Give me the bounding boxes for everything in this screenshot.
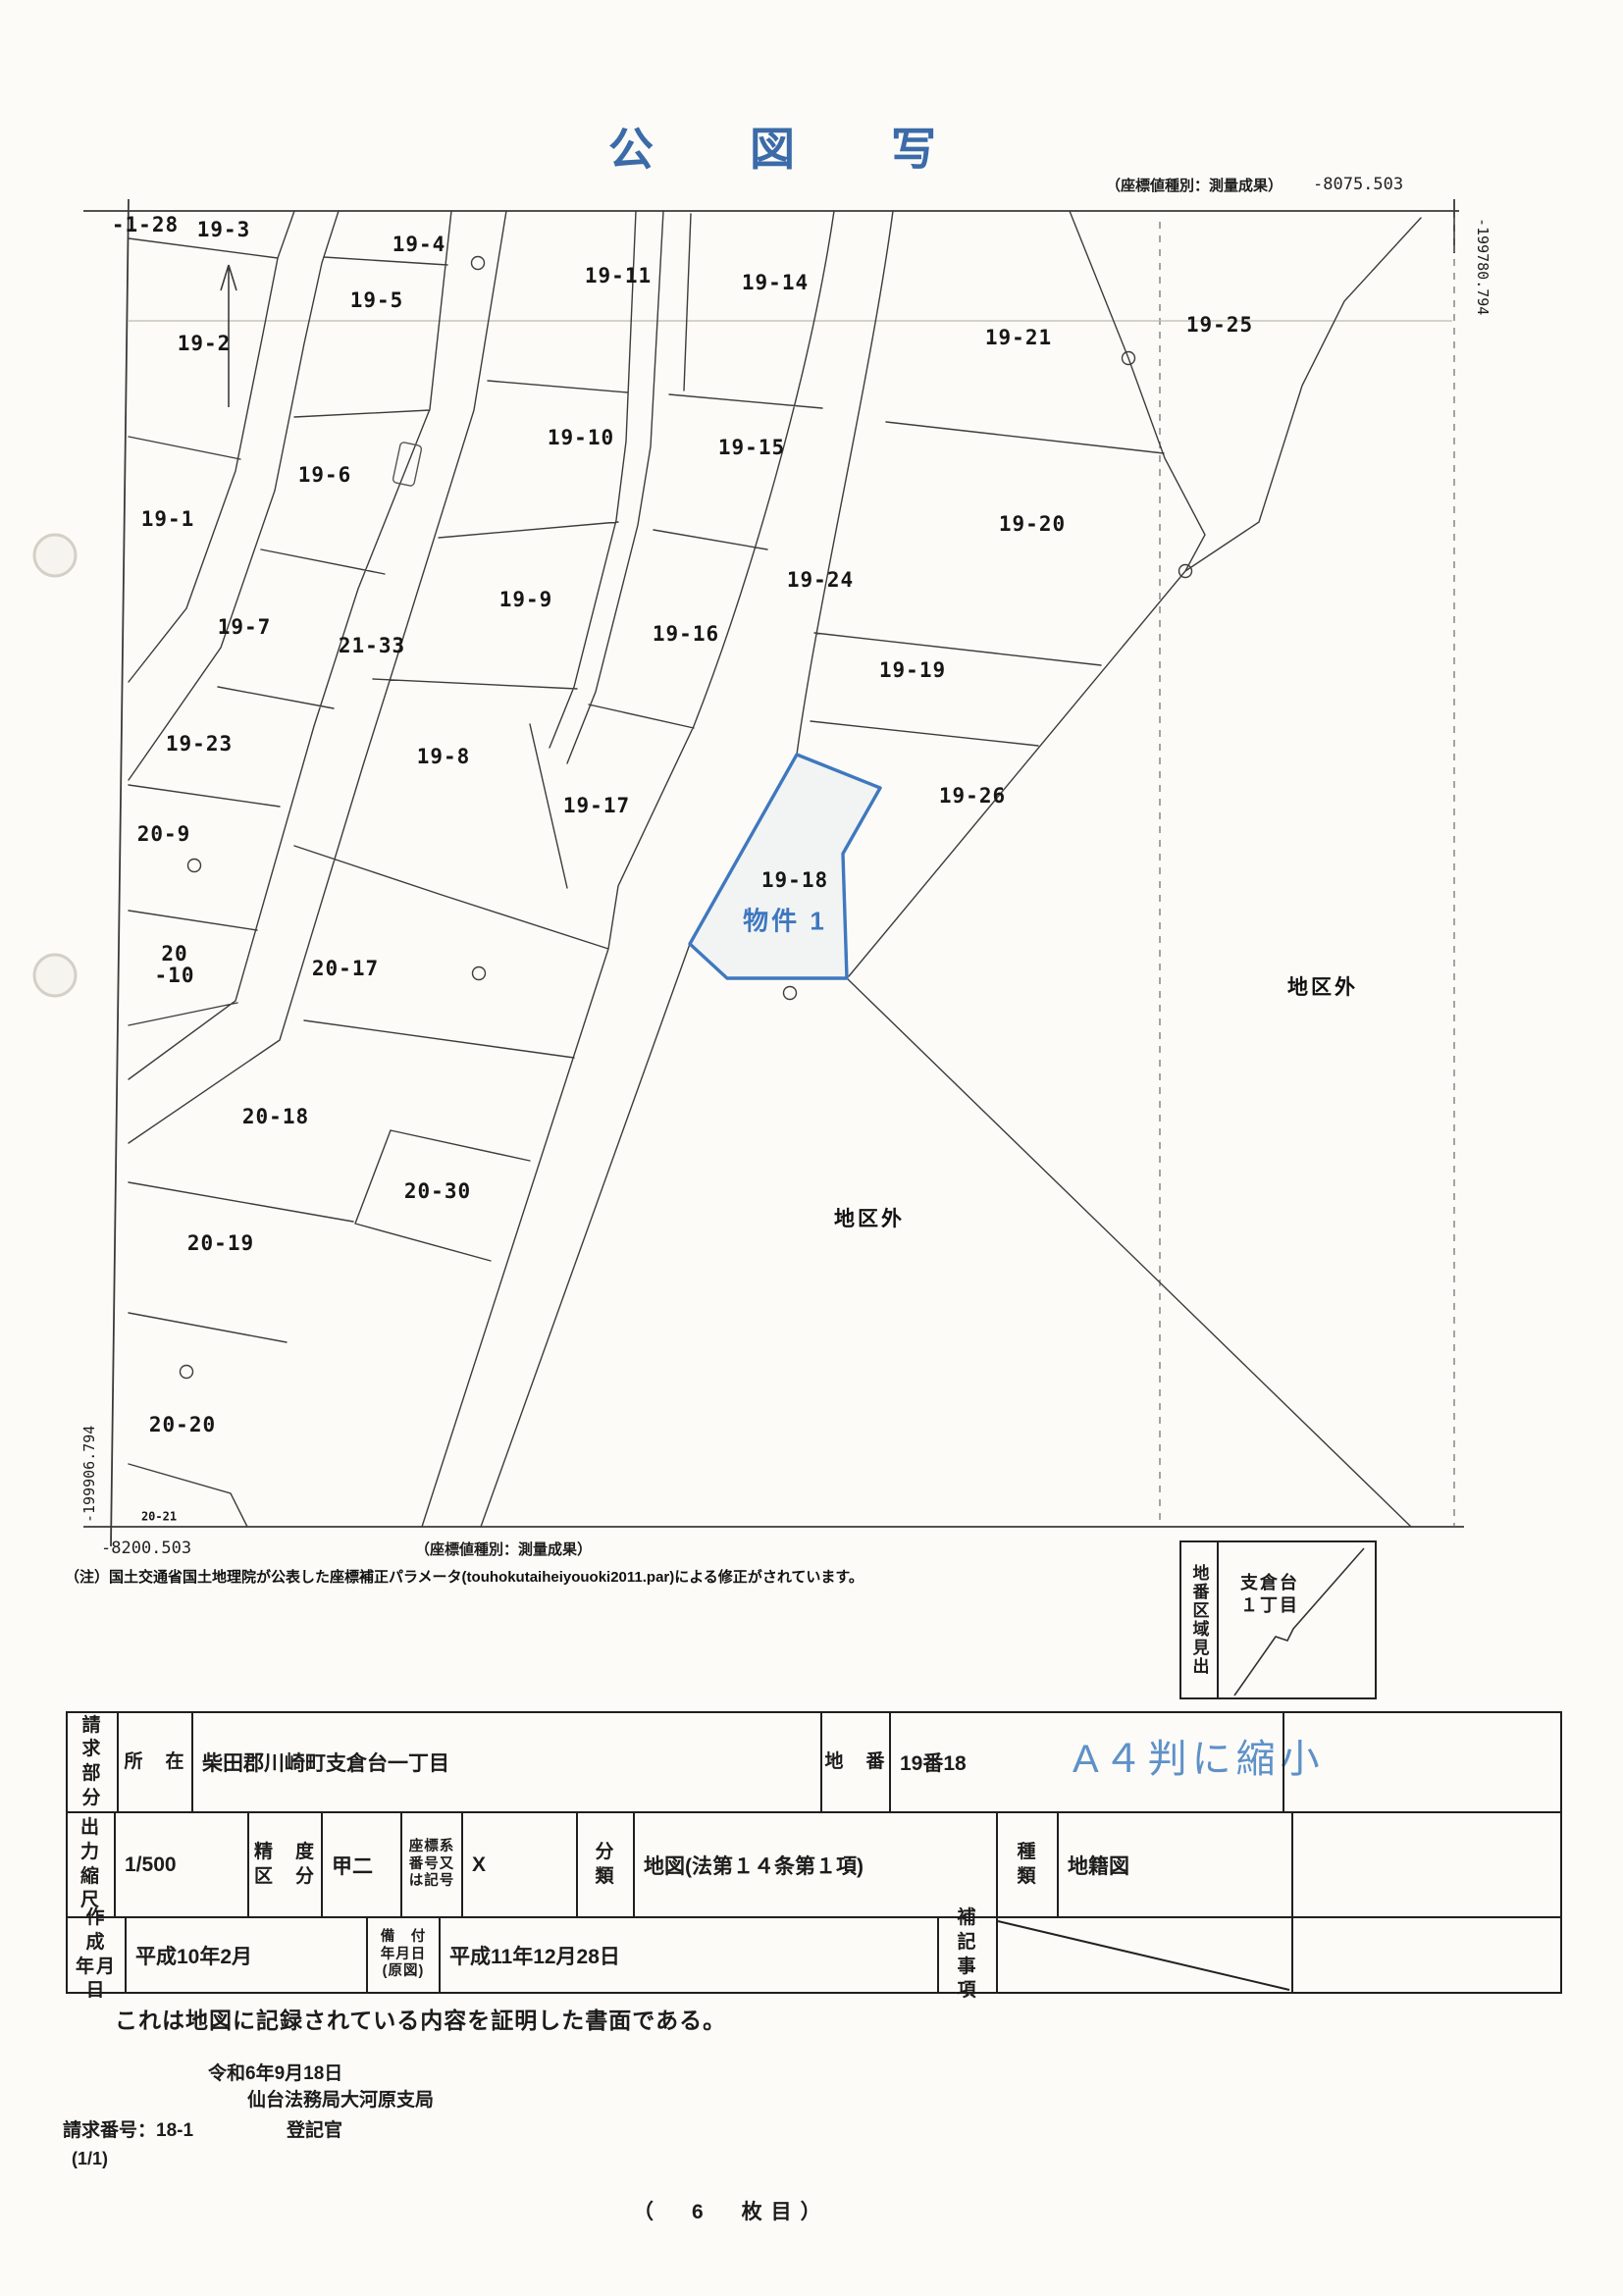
coord-value-bottom-left: -8200.503: [101, 1539, 191, 1558]
parcel-label: 20-21: [141, 1511, 177, 1524]
table-label-coordinate-system: 座標系 番号又 は記号: [400, 1811, 463, 1918]
coord-value-right-vertical: -199780.794: [1474, 218, 1492, 315]
table-label-precision-class: 精 度 区 分: [247, 1811, 323, 1918]
parcel-label: 20-20: [149, 1414, 216, 1435]
table-value-filed-date: 平成11年12月28日: [439, 1916, 939, 1994]
parcel-label: 19-1: [141, 508, 195, 530]
table-value-classification: 地図(法第１４条第１項): [633, 1811, 998, 1918]
index-box-side-label: 地番区域見出: [1179, 1540, 1219, 1699]
table-label-created-date: 作 成 年月日: [66, 1916, 127, 1994]
parcel-label: 19-2: [178, 333, 232, 354]
issuing-office: 仙台法務局大河原支局: [247, 2085, 434, 2112]
table-value-location: 柴田郡川崎町支倉台一丁目: [191, 1711, 822, 1813]
parcel-label: 20-17: [312, 958, 379, 979]
parcel-label: 19-14: [742, 272, 809, 293]
parcel-label: 19-7: [218, 616, 272, 638]
parcel-label: -1-28: [112, 214, 179, 235]
table-cell-remarks-empty: [996, 1916, 1293, 1994]
parcel-label: 21-33: [339, 635, 405, 656]
punch-hole: [34, 955, 76, 996]
coord-type-note-top: （座標値種別：測量成果）: [1106, 175, 1283, 195]
certification-statement: これは地図に記録されている内容を証明した書面である。: [115, 2002, 726, 2035]
table-label-output-scale: 出 力 縮 尺: [66, 1811, 116, 1918]
parcel-label: 20-30: [404, 1180, 471, 1202]
index-box-map: 支倉台 １丁目: [1217, 1540, 1377, 1699]
page-count: (1/1): [72, 2149, 108, 2169]
parcel-label: 19-8: [417, 746, 471, 767]
parcel-label: 19-23: [166, 733, 233, 755]
subject-property-label: 物件 1: [743, 902, 827, 938]
parcel-label: 19-26: [939, 785, 1006, 807]
table-value-precision-class: 甲二: [321, 1811, 402, 1918]
table-label-request-part: 請 求 部 分: [66, 1711, 119, 1813]
grid-dashed-lines: [1160, 218, 1454, 1527]
parcel-label: 19-18: [761, 869, 828, 891]
highlighted-parcel-outline: [690, 755, 880, 978]
parcel-label: 20-9: [137, 823, 191, 845]
parcel-label: 20-19: [187, 1232, 254, 1254]
parcel-label: 19-11: [585, 265, 652, 287]
table-label-kind: 種 類: [996, 1811, 1059, 1918]
parcel-label: 19-6: [298, 464, 352, 486]
parcel-label: 19-5: [350, 289, 404, 311]
table-value-coordinate-system: X: [461, 1811, 578, 1918]
index-box-area-name: 支倉台 １丁目: [1240, 1572, 1375, 1616]
table-label-filed-date: 備 付 年月日 (原図): [366, 1916, 441, 1994]
correction-note: （注）国土交通省国土地理院が公表した座標補正パラメータ(touhokutaihe…: [65, 1566, 864, 1587]
table-cell-empty: [1283, 1711, 1562, 1813]
table-value-lot-number: 19番18: [889, 1711, 1284, 1813]
scanned-cadastral-certificate: { "title": "公 図 写", "stamp": "A４判に縮小", "…: [0, 0, 1623, 2296]
outside-district-label: 地区外: [834, 1203, 905, 1232]
parcel-label: 19-10: [548, 427, 614, 448]
parcel-label: 20 -10: [155, 943, 195, 986]
page-title: 公 図 写: [608, 114, 962, 179]
parcel-label: 19-19: [879, 659, 946, 681]
parcel-label: 19-21: [985, 327, 1052, 348]
parcel-label: 19-4: [393, 234, 446, 255]
table-value-created-date: 平成10年2月: [125, 1916, 368, 1994]
table-label-classification: 分 類: [576, 1811, 635, 1918]
survey-point-icons: [181, 257, 1192, 1379]
table-label-location: 所 在: [117, 1711, 193, 1813]
coord-value-bottom-left-vertical: -199906.794: [80, 1426, 98, 1523]
parcel-label: 19-20: [999, 513, 1066, 535]
table-cell-empty: [1291, 1811, 1562, 1918]
road-plate-icon: [393, 442, 422, 487]
table-label-lot-number: 地 番: [820, 1711, 891, 1813]
table-label-remarks: 補 記 事 項: [937, 1916, 998, 1994]
parcel-label: 19-16: [653, 623, 719, 645]
parcel-label: 19-3: [197, 219, 251, 240]
parcel-label: 19-24: [787, 569, 854, 591]
parcel-label: 19-9: [499, 589, 553, 610]
issue-date: 令和6年9月18日: [208, 2059, 342, 2085]
coord-value-top-right: -8075.503: [1313, 175, 1403, 194]
punch-hole: [34, 535, 76, 576]
table-value-output-scale: 1/500: [114, 1811, 249, 1918]
coord-type-note-bottom: （座標値種別：測量成果）: [415, 1539, 592, 1559]
outside-district-label: 地区外: [1287, 971, 1358, 1001]
registrar-title: 登記官: [287, 2115, 342, 2142]
parcel-label: 19-15: [718, 437, 785, 458]
parcel-label: 19-17: [563, 795, 630, 816]
request-number: 請求番号：18-1: [63, 2115, 193, 2142]
parcel-label: 19-25: [1186, 314, 1253, 336]
sheet-number: （ 6 枚目）: [633, 2196, 830, 2225]
table-value-kind: 地籍図: [1057, 1811, 1293, 1918]
table-cell-empty: [1291, 1916, 1562, 1994]
parcel-label: 20-18: [242, 1106, 309, 1127]
